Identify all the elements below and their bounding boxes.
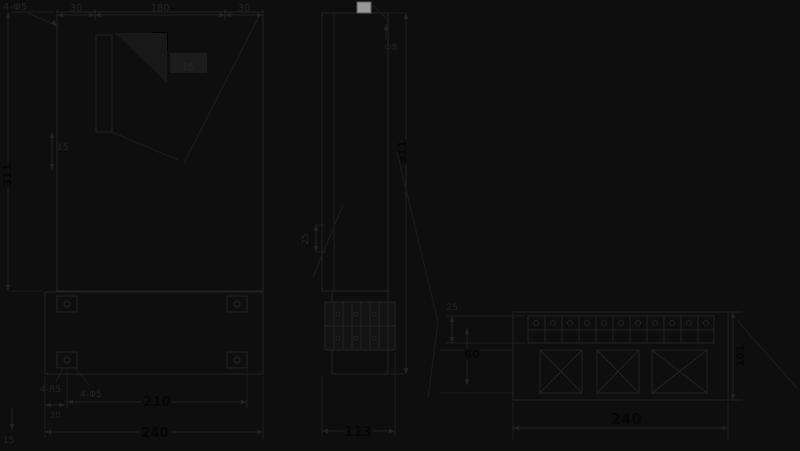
back-edge-dimension: 30 xyxy=(45,403,65,421)
front-leader-line-2 xyxy=(184,14,260,163)
front-height-label: 311 xyxy=(1,164,14,187)
dim-top-center: 180 xyxy=(150,3,169,14)
fillet-callout-label: 4-R5 xyxy=(40,385,61,395)
front-leader-line-1 xyxy=(112,132,178,160)
corner-hole-label: 4-Φ5 xyxy=(3,2,27,13)
terminal-grid xyxy=(325,302,395,350)
block-height-label: 60 xyxy=(464,348,480,361)
top-knob xyxy=(357,2,371,13)
side-lower-width-dimension: 113 xyxy=(322,352,395,440)
front-shade-triangle xyxy=(115,33,167,83)
mount-boss-br xyxy=(227,352,247,368)
projection-line-1 xyxy=(397,152,438,322)
back-foot-dim-label: 15 xyxy=(3,436,14,446)
front-slot-dim-label: 15 xyxy=(57,143,68,153)
overall-width-label-right: 240 xyxy=(610,410,641,428)
front-inner-label: 15 xyxy=(182,62,195,73)
overall-width-label-left: 240 xyxy=(141,426,168,441)
knob-callout: Φ8 xyxy=(372,5,398,53)
side-view: Φ8 25 xyxy=(301,2,438,440)
back-edge-dim-label: 30 xyxy=(49,411,61,421)
back-view: 4-R5 4-Φ5 30 15 210 xyxy=(3,292,263,446)
terminal-strip xyxy=(528,316,714,343)
hole-callout-label: 4-Φ5 xyxy=(80,390,102,400)
overall-width-dimension-right: 240 xyxy=(513,402,728,440)
mount-boss-bl xyxy=(57,352,77,368)
back-callouts: 4-R5 4-Φ5 xyxy=(40,368,102,400)
projection-line-2 xyxy=(428,322,438,398)
side-depth-dimension: 25 xyxy=(301,225,325,252)
knob-label: Φ8 xyxy=(385,43,398,53)
dim-top-left: 30 xyxy=(70,3,83,14)
side-depth-label: 25 xyxy=(301,233,311,244)
knockout-panels xyxy=(540,350,707,393)
strip-height-label: 25 xyxy=(446,303,457,313)
front-corner-callout: 4-Φ5 xyxy=(3,2,59,28)
mount-hole-br xyxy=(234,357,240,363)
dimension-drawing: 15 30 180 30 4-Φ5 xyxy=(0,0,800,451)
dim-top-right: 30 xyxy=(238,3,251,14)
front-slot-dimension: 15 xyxy=(50,132,69,170)
front-height-dimension: 311 xyxy=(1,12,54,291)
mount-hole-tr xyxy=(234,301,240,307)
side-height-label: 311 xyxy=(396,141,409,164)
back-foot-dimension: 15 xyxy=(3,408,14,446)
depth-label: 101 xyxy=(734,345,747,368)
front-keyhole-slot xyxy=(96,35,112,132)
back-outline xyxy=(45,292,263,374)
side-outline xyxy=(322,13,388,291)
depth-dimension: 101 xyxy=(728,312,747,400)
side-leader-line xyxy=(313,205,343,277)
hole-pitch-label: 210 xyxy=(143,395,170,410)
mount-boss-tr xyxy=(227,296,247,312)
mount-hole-tl xyxy=(64,301,70,307)
technical-drawing-canvas: 15 30 180 30 4-Φ5 xyxy=(0,0,800,451)
bottom-view: 25 60 101 240 xyxy=(440,303,797,440)
mount-boss-tl xyxy=(57,296,77,312)
side-lower-width-label: 113 xyxy=(344,425,371,440)
mount-hole-bl xyxy=(64,357,70,363)
front-view: 15 30 180 30 4-Φ5 xyxy=(1,2,263,291)
